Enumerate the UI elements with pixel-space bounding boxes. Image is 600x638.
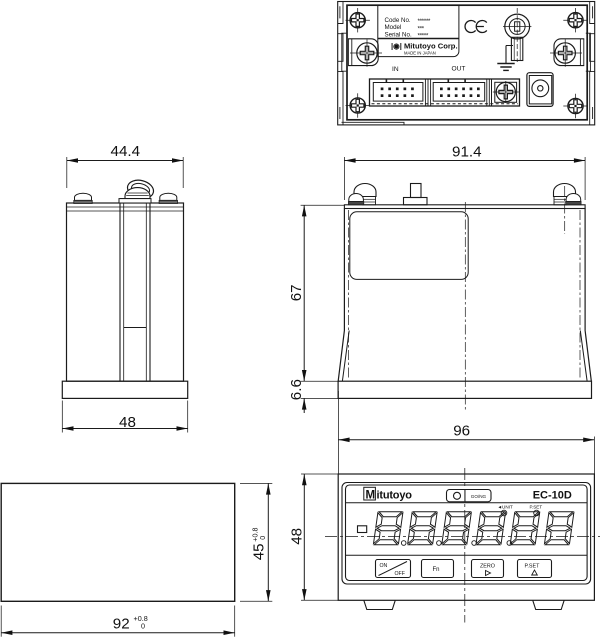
svg-text:OFF: OFF (395, 571, 405, 577)
svg-text:48: 48 (289, 528, 306, 545)
svg-text:96: 96 (453, 422, 470, 439)
svg-text:itutoyo: itutoyo (377, 489, 413, 501)
svg-text:6.6: 6.6 (288, 379, 305, 400)
svg-text:P.SET: P.SET (530, 505, 543, 510)
svg-text:GO/NG: GO/NG (471, 494, 487, 499)
svg-text:OUT: OUT (452, 66, 466, 73)
svg-text:67: 67 (288, 284, 305, 301)
svg-text:******: ****** (418, 18, 431, 25)
svg-text:ZERO: ZERO (480, 564, 495, 570)
svg-text:45: 45 (251, 543, 268, 560)
svg-text:0: 0 (258, 536, 267, 540)
svg-text:Code No.: Code No. (385, 17, 411, 24)
svg-text:Serial No.: Serial No. (385, 31, 412, 38)
svg-text:92: 92 (113, 616, 130, 633)
svg-text:IN: IN (392, 66, 399, 73)
svg-text:◄UNIT: ◄UNIT (498, 505, 513, 510)
svg-text:91.4: 91.4 (452, 144, 482, 161)
svg-text:44.4: 44.4 (111, 143, 141, 160)
svg-text:MADE IN JAPAN: MADE IN JAPAN (404, 50, 436, 55)
svg-text:ON: ON (380, 563, 388, 569)
svg-text:Model: Model (385, 24, 402, 31)
svg-text:***: *** (418, 25, 425, 32)
svg-text:Fn: Fn (433, 567, 440, 573)
svg-text:0: 0 (141, 621, 145, 630)
svg-text:*****: ***** (418, 33, 429, 40)
svg-text:P.SET: P.SET (525, 564, 541, 570)
svg-text:|◉| Mitutoyo Corp.: |◉| Mitutoyo Corp. (391, 42, 458, 51)
svg-text:EC-10D: EC-10D (533, 489, 572, 501)
